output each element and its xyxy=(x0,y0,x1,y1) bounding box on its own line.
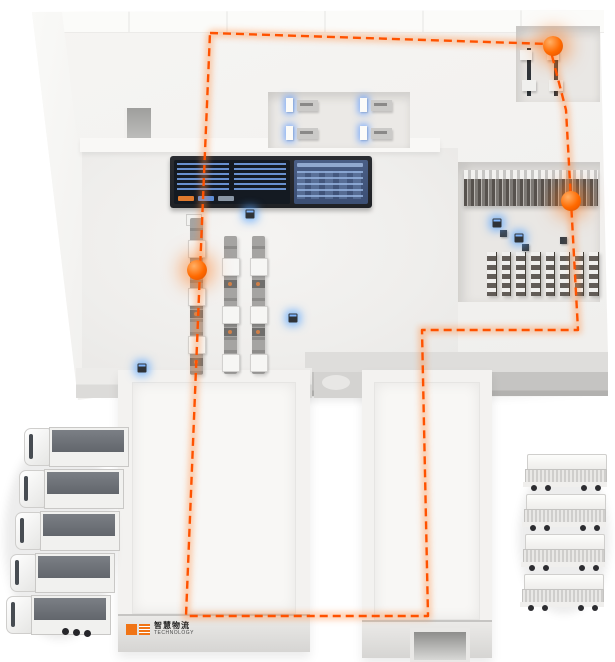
dashboard-text-column xyxy=(234,163,286,193)
rack-column xyxy=(589,252,599,296)
ramp-channel xyxy=(132,382,296,614)
semi-truck xyxy=(6,594,110,634)
conveyor-joint xyxy=(224,328,237,336)
floor-crate xyxy=(560,237,567,244)
rack-column xyxy=(502,252,512,296)
workstation-tower xyxy=(360,126,367,140)
dashboard-text-column xyxy=(177,163,229,193)
conveyor-joint xyxy=(252,280,265,288)
truck-cab xyxy=(24,428,50,466)
dock-ramp-right xyxy=(362,370,492,658)
rack-column xyxy=(560,252,570,296)
brand-name: 智慧物流 xyxy=(154,622,194,630)
truck-wheels xyxy=(580,525,586,531)
conveyor-carton xyxy=(250,354,268,372)
logo-square xyxy=(126,624,137,635)
ramp-channel xyxy=(374,382,480,620)
conveyor-carton xyxy=(188,336,206,354)
dashboard-chart-header xyxy=(297,163,363,167)
conveyor-line xyxy=(224,236,237,374)
truck-wheels xyxy=(579,565,585,571)
truck-wheels xyxy=(531,485,537,491)
workstation xyxy=(360,124,394,142)
truck-wheels xyxy=(581,485,587,491)
workstation-bench xyxy=(371,100,392,111)
box-truck xyxy=(519,534,607,572)
ramp-connector-pad-top xyxy=(322,375,350,390)
semi-truck xyxy=(15,510,119,550)
workstation xyxy=(360,96,394,114)
smart-warehouse-scene: 智慧物流 TECHNOLOGY xyxy=(0,0,615,662)
semi-truck xyxy=(19,468,123,508)
logo-grid-square xyxy=(139,624,150,635)
conveyor-carton xyxy=(222,354,240,372)
truck-trailer xyxy=(40,511,120,551)
truck-fleet-left xyxy=(6,426,118,642)
iot-sensor-blue xyxy=(493,219,502,228)
semi-truck xyxy=(10,552,114,592)
agv-node-orange xyxy=(543,36,563,56)
brand-text: 智慧物流 TECHNOLOGY xyxy=(154,622,194,636)
box-truck xyxy=(521,454,609,492)
machine-carriage xyxy=(549,80,563,91)
conveyor-line xyxy=(252,236,265,374)
dashboard-chart-panel xyxy=(294,160,368,204)
dock-ramp-left: 智慧物流 TECHNOLOGY xyxy=(118,370,310,652)
dock-lift-machine xyxy=(520,48,538,96)
truck-wheels xyxy=(529,565,535,571)
conveyor-joint xyxy=(224,280,237,288)
workstation xyxy=(286,96,320,114)
machine-carriage xyxy=(520,50,532,60)
rack-column xyxy=(487,252,497,296)
semi-truck xyxy=(24,426,128,466)
floor-crate xyxy=(522,244,529,251)
ramp-front-face xyxy=(362,620,492,658)
rack-column xyxy=(516,252,526,296)
truck-wheels xyxy=(62,628,69,635)
truck-cab xyxy=(6,596,32,634)
conveyor-carton xyxy=(188,240,206,258)
agv-node-orange xyxy=(187,260,207,280)
rack-column-group xyxy=(487,252,599,296)
workstation-bench xyxy=(297,128,318,139)
workstation-bench xyxy=(371,128,392,139)
conveyor-carton xyxy=(222,258,240,276)
truck-cab xyxy=(10,554,36,592)
rack-column xyxy=(575,252,585,296)
truck-trailer xyxy=(31,595,111,635)
chip-gray xyxy=(218,196,234,201)
conveyor-joint xyxy=(190,358,203,366)
conveyor-carton xyxy=(222,306,240,324)
box-truck xyxy=(518,574,606,612)
conveyor-carton xyxy=(250,258,268,276)
workstation-tower xyxy=(286,98,293,112)
iot-sensor-blue xyxy=(515,234,524,243)
truck-fleet-right xyxy=(518,454,610,618)
ramp-front-face: 智慧物流 TECHNOLOGY xyxy=(118,614,310,652)
workstation-tower xyxy=(286,126,293,140)
truck-trailer xyxy=(44,469,124,509)
rack-column xyxy=(546,252,556,296)
truck-trailer xyxy=(35,553,115,593)
machine-carriage xyxy=(522,80,536,91)
chip-orange xyxy=(178,196,194,201)
workstation xyxy=(286,124,320,142)
box-truck xyxy=(520,494,608,532)
conveyor-joint xyxy=(252,328,265,336)
brand-tagline: TECHNOLOGY xyxy=(154,631,194,636)
truck-wheels xyxy=(578,605,584,611)
chip-blue xyxy=(198,196,214,201)
control-dashboard-screen xyxy=(170,156,372,208)
dashboard-status-chips xyxy=(178,196,234,201)
truck-wheels xyxy=(528,605,534,611)
rack-column xyxy=(531,252,541,296)
workstation-tower xyxy=(360,98,367,112)
truck-cab xyxy=(19,470,45,508)
iot-sensor-blue xyxy=(246,210,255,219)
floor-crate xyxy=(500,230,507,237)
dock-door-opening xyxy=(410,628,470,662)
truck-trailer xyxy=(49,427,129,467)
rack-wall-top xyxy=(464,170,598,179)
brand-logo: 智慧物流 TECHNOLOGY xyxy=(126,622,194,636)
iot-sensor-blue xyxy=(289,314,298,323)
brand-logo-icon xyxy=(126,624,150,635)
conveyor-joint xyxy=(190,310,203,318)
dashboard-chart-body xyxy=(297,171,363,199)
conveyor-carton xyxy=(250,306,268,324)
conveyor-line xyxy=(190,218,203,375)
truck-cab xyxy=(15,512,41,550)
conveyor-carton xyxy=(188,288,206,306)
workstation-bench xyxy=(297,100,318,111)
dashboard-data-panel xyxy=(174,160,290,204)
truck-wheels xyxy=(530,525,536,531)
agv-node-orange xyxy=(561,191,581,211)
iot-sensor-blue xyxy=(138,364,147,373)
